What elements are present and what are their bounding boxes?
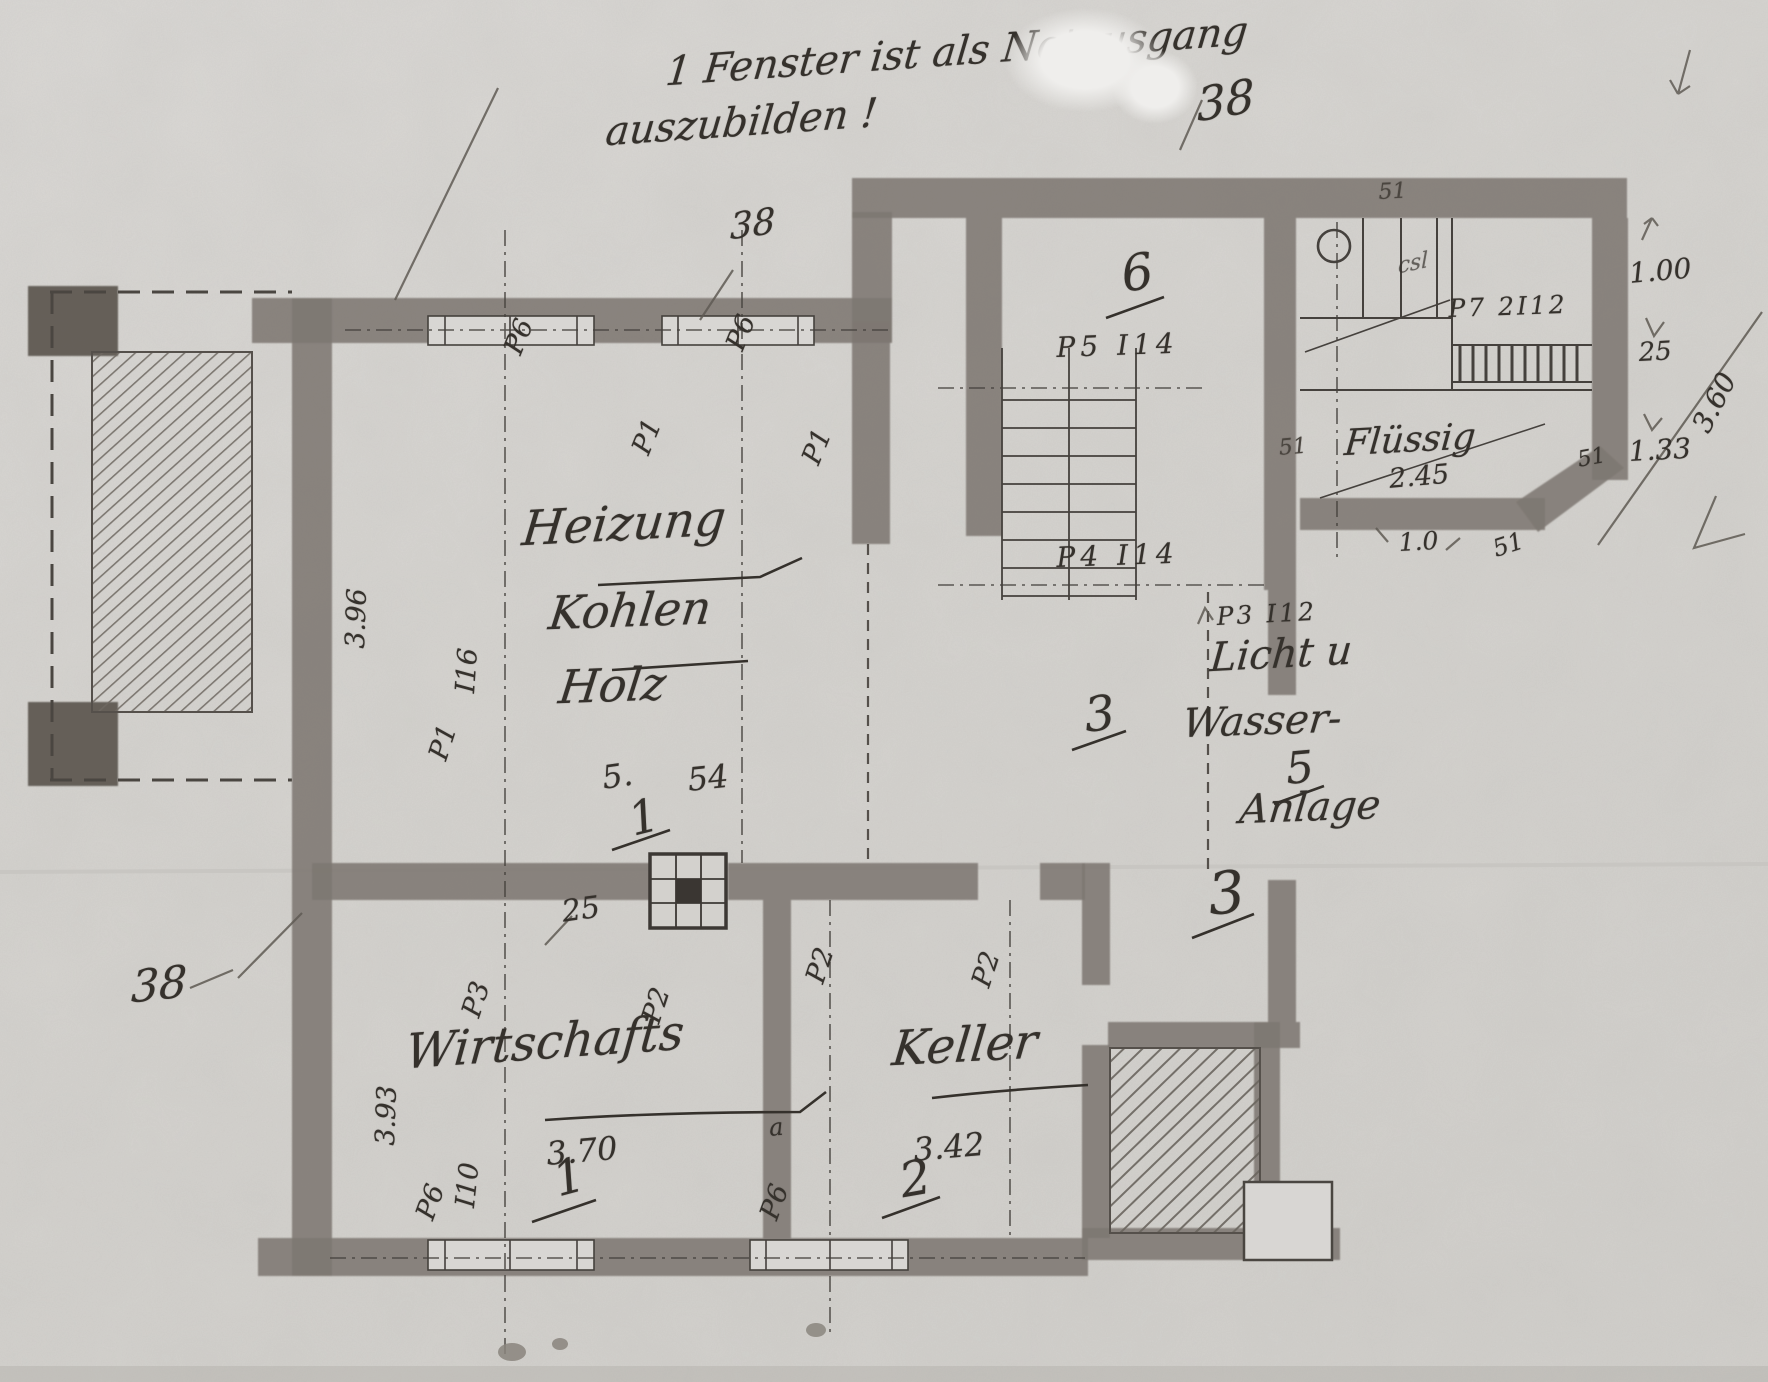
post-p3-i12: P3 I12 [1216, 599, 1318, 629]
post-p4-i14: P4 I14 [1056, 540, 1179, 572]
dim-annex-10: 1.0 [1398, 528, 1439, 555]
room-keller-label: Keller [890, 1017, 1040, 1073]
wall-thickness-right: 51 [1576, 445, 1607, 472]
room-heizung-label-3: Holz [556, 660, 668, 710]
room-stairhall-number: 6 [1118, 246, 1156, 300]
room-corridor-number-lower: 3 [1205, 862, 1248, 924]
room-wirtschafts-height-dim: 3.93 [372, 1085, 401, 1146]
room-heizung-width-dim-b: 54 [686, 760, 730, 796]
wall-offset-25: 25 [560, 893, 602, 928]
post-i10-bottom-left: I10 [452, 1161, 484, 1209]
room-heizung-width-dim-a: 5. [600, 758, 635, 794]
dim-right-133: 1.33 [1628, 435, 1692, 466]
room-fluessig-label: Flüssig [1343, 419, 1477, 462]
dim-right-100: 1.00 [1628, 255, 1693, 288]
room-licht-label-2: Wasser- [1181, 698, 1344, 744]
wall-thickness-top: 51 [1378, 181, 1407, 204]
dim-38-top-right: 38 [1196, 72, 1255, 129]
wall-thickness-left: 51 [1278, 436, 1308, 460]
post-p7-2i12: P7 2I12 [1448, 292, 1568, 321]
room-fluessig-dim: 2.45 [1388, 461, 1450, 493]
dim-right-25: 25 [1638, 338, 1672, 366]
dim-38-bottom-left: 38 [130, 960, 187, 1010]
post-i16-left-wall: I16 [452, 647, 482, 694]
room-licht-label-3: Anlage [1238, 785, 1383, 830]
room-heizung-label-2: Kohlen [546, 584, 714, 636]
room-corridor-number-upper: 3 [1082, 689, 1117, 740]
chimney [650, 854, 726, 928]
room-heizung-height-dim: 3.96 [342, 588, 371, 649]
room-heizung-label-1: Heizung [520, 494, 728, 553]
small-mark-a: a [768, 1115, 784, 1140]
scan-blob [1112, 50, 1198, 124]
floor-plan-linework [0, 0, 1768, 1382]
post-p5-i14: P5 I14 [1056, 330, 1179, 362]
room-licht-label-1: Licht u [1208, 631, 1353, 679]
dim-38-top-wall: 38 [730, 204, 775, 247]
scanned-basement-floor-plan: 1 Fenster ist als Notausgang auszubilden… [0, 0, 1768, 1382]
